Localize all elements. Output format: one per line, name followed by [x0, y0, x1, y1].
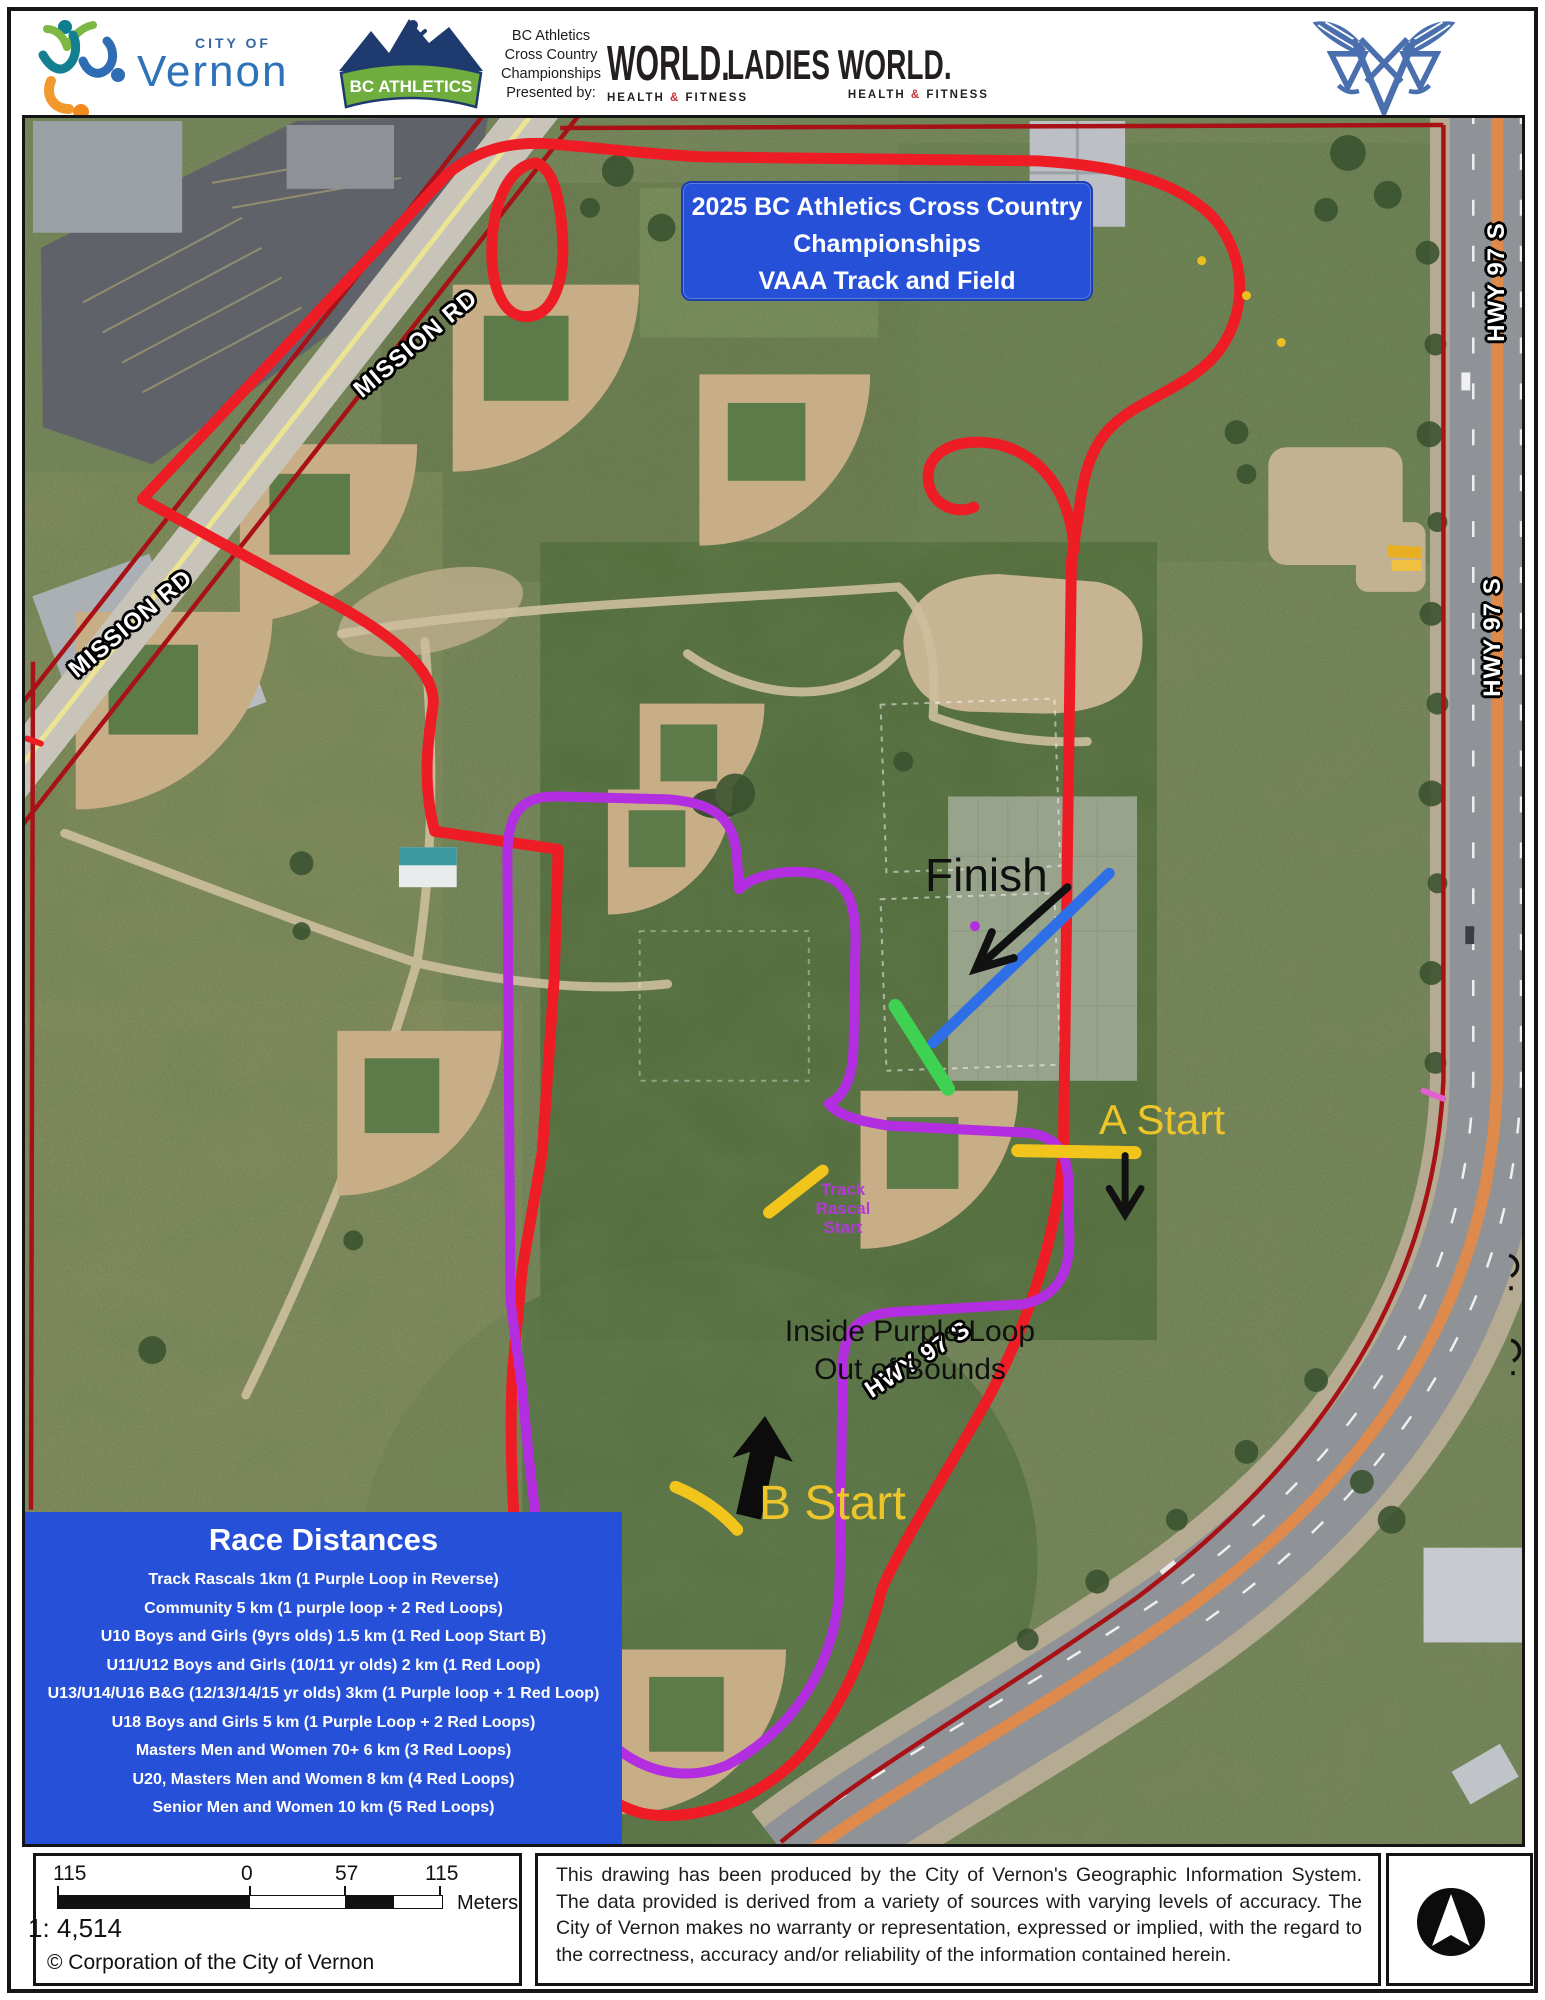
race-distance-item: U13/U14/U16 B&G (12/13/14/15 yr olds) 3k… — [25, 1680, 622, 1709]
b-start-label: B Start — [759, 1476, 906, 1531]
world-sub-health: HEALTH — [607, 92, 665, 104]
scale-tick-115-right: 115 — [425, 1862, 458, 1886]
world-wordmark: WORLD. — [607, 35, 730, 92]
ladies-world-sub-amp: & — [911, 89, 921, 101]
title-line1: 2025 BC Athletics Cross Country — [683, 189, 1091, 226]
disclaimer-text: This drawing has been produced by the Ci… — [556, 1862, 1362, 1968]
race-distance-item: U18 Boys and Girls 5 km (1 Purple Loop +… — [25, 1709, 622, 1738]
north-arrow-icon — [1389, 1856, 1530, 1983]
race-distances-box: Race Distances Track Rascals 1km (1 Purp… — [25, 1512, 622, 1847]
presented-by-line: BC Athletics — [499, 27, 603, 46]
race-distance-item: Track Rascals 1km (1 Purple Loop in Reve… — [25, 1566, 622, 1595]
world-sub-amp: & — [670, 92, 680, 104]
scale-tick-57: 57 — [335, 1862, 358, 1886]
track-rascal-start-label: Track Rascal Start — [813, 1180, 873, 1237]
finish-label: Finish — [925, 848, 1048, 902]
hwy-97-label-middle: HWY 97 S — [1479, 577, 1507, 697]
copyright-text: © Corporation of the City of Vernon — [47, 1951, 374, 1975]
scale-unit-label: Meters — [457, 1892, 518, 1915]
vaaa-winged-emblem-icon — [1299, 13, 1469, 115]
race-distances-title: Race Distances — [25, 1522, 622, 1558]
ladies-world-subtext: HEALTH & FITNESS — [727, 89, 1015, 101]
ladies-world-sub-fitness: FITNESS — [926, 89, 989, 101]
vernon-name-text: Vernon — [137, 47, 288, 97]
title-line2: Championships — [683, 226, 1091, 263]
scale-bar-segments — [57, 1895, 443, 1909]
north-arrow-box — [1386, 1853, 1533, 1986]
track-rascal-line: Start — [813, 1218, 873, 1237]
bc-athletics-logo: BC ATHLETICS — [333, 13, 489, 115]
presented-by-line: Cross Country — [499, 46, 603, 65]
out-of-bounds-line2: Out of Bounds — [760, 1351, 1060, 1389]
presented-by-line: Championships — [499, 65, 603, 84]
track-rascal-line: Track — [813, 1180, 873, 1199]
scale-tick-0: 0 — [241, 1862, 253, 1886]
vernon-wordmark: CITY OF Vernon — [137, 35, 288, 97]
out-of-bounds-line1: Inside Purple Loop — [760, 1313, 1060, 1351]
scale-tick-115-left: 115 — [53, 1862, 86, 1886]
course-map: MISSION RD MISSION RD HWY 97 S HWY 97 S … — [22, 115, 1525, 1847]
race-distance-item: U20, Masters Men and Women 8 km (4 Red L… — [25, 1766, 622, 1795]
city-of-vernon-logo: CITY OF Vernon — [35, 17, 288, 115]
bc-athletics-banner-text: BC ATHLETICS — [350, 77, 473, 96]
a-start-label: A Start — [1099, 1096, 1225, 1144]
race-distance-item: U10 Boys and Girls (9yrs olds) 1.5 km (1… — [25, 1623, 622, 1652]
presented-by-text: BC Athletics Cross Country Championships… — [499, 27, 603, 103]
map-title-box: 2025 BC Athletics Cross Country Champion… — [681, 181, 1093, 301]
ladies-world-health-fitness-logo: LADIES WORLD. HEALTH & FITNESS — [727, 41, 1015, 101]
race-distance-item: Senior Men and Women 10 km (5 Red Loops) — [25, 1794, 622, 1823]
map-sheet: CITY OF Vernon BC ATHLETICS BC Athletics… — [0, 0, 1545, 2000]
ladies-world-wordmark: LADIES WORLD. — [727, 41, 952, 89]
race-distance-item: Community 5 km (1 purple loop + 2 Red Lo… — [25, 1595, 622, 1624]
ladies-world-sub-health: HEALTH — [848, 89, 906, 101]
header: CITY OF Vernon BC ATHLETICS BC Athletics… — [11, 11, 1534, 115]
title-line3: VAAA Track and Field — [683, 263, 1091, 300]
hwy-97-label-upper: HWY 97 S — [1483, 222, 1511, 342]
track-rascal-line: Rascal — [813, 1199, 873, 1218]
scale-ratio: 1: 4,514 — [28, 1913, 122, 1944]
race-distance-item: U11/U12 Boys and Girls (10/11 yr olds) 2… — [25, 1652, 622, 1681]
out-of-bounds-label: Inside Purple Loop Out of Bounds — [760, 1313, 1060, 1389]
a-start-line — [1018, 1151, 1135, 1153]
vernon-figures-icon — [35, 17, 127, 115]
presented-by-line: Presented by: — [499, 84, 603, 103]
race-distance-item: Masters Men and Women 70+ 6 km (3 Red Lo… — [25, 1737, 622, 1766]
